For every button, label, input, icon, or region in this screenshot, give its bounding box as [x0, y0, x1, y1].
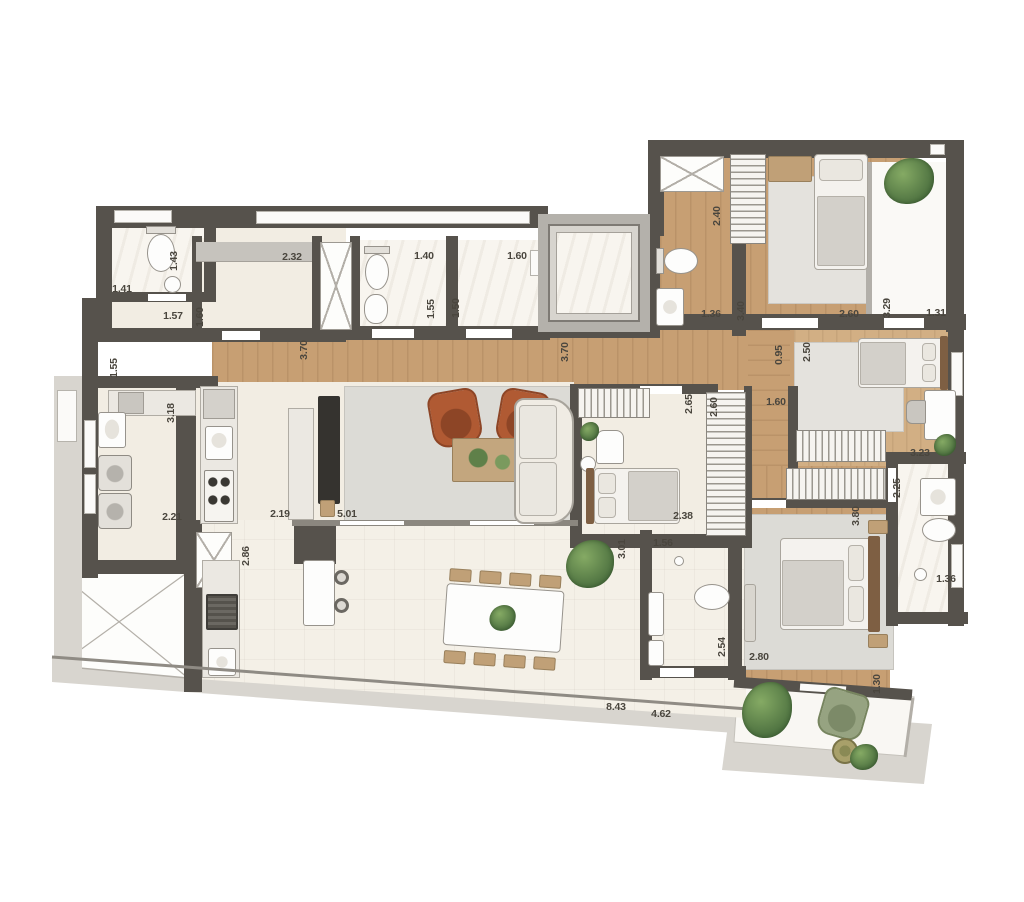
dimension-label: 1.36 — [701, 308, 721, 320]
dimension-label: 2.60 — [839, 308, 859, 320]
dimension-label: 2.19 — [270, 508, 290, 520]
dimension-label: 5.01 — [337, 508, 357, 520]
dimension-label: 1.43 — [168, 251, 180, 271]
dimension-label: 1.56 — [653, 537, 673, 549]
dimension-label: 2.21 — [162, 511, 182, 523]
dimension-label: 3.70 — [298, 340, 310, 360]
dimension-label: 1.36 — [936, 573, 956, 585]
dimension-label: 2.65 — [683, 394, 695, 414]
dimension-label: 0.95 — [773, 345, 785, 365]
dimension-label: 2.25 — [891, 478, 903, 498]
dimension-label: 3.18 — [165, 403, 177, 423]
dimension-label: 3.23 — [910, 447, 930, 459]
dimension-label: 2.32 — [282, 251, 302, 263]
dimension-label: 1.60 — [766, 396, 786, 408]
dimension-label: 2.38 — [673, 510, 693, 522]
dimension-label: 1.57 — [163, 310, 183, 322]
dimension-label: 1.55 — [425, 299, 437, 319]
dimension-label: 1.30 — [871, 674, 883, 694]
dimension-labels-layer: 1.411.431.571.602.321.553.701.401.551.50… — [0, 0, 1024, 902]
dimension-label: 3.29 — [881, 298, 893, 318]
dimension-label: 4.62 — [651, 708, 671, 720]
dimension-label: 2.40 — [711, 206, 723, 226]
dimension-label: 2.60 — [708, 397, 720, 417]
dimension-label: 2.54 — [716, 637, 728, 657]
floor-plan: 1.411.431.571.602.321.553.701.401.551.50… — [0, 0, 1024, 902]
dimension-label: 2.50 — [801, 342, 813, 362]
dimension-label: 3.80 — [850, 506, 862, 526]
dimension-label: 2.86 — [240, 546, 252, 566]
dimension-label: 3.40 — [735, 301, 747, 321]
dimension-label: 1.55 — [108, 358, 120, 378]
dimension-label: 3.70 — [559, 342, 571, 362]
dimension-label: 1.41 — [112, 283, 132, 295]
dimension-label: 1.60 — [194, 307, 206, 327]
dimension-label: 3.01 — [616, 539, 628, 559]
dimension-label: 1.50 — [450, 298, 462, 318]
dimension-label: 1.60 — [507, 250, 527, 262]
dimension-label: 1.31 — [926, 307, 946, 319]
dimension-label: 1.40 — [414, 250, 434, 262]
dimension-label: 8.43 — [606, 701, 626, 713]
dimension-label: 2.80 — [749, 651, 769, 663]
